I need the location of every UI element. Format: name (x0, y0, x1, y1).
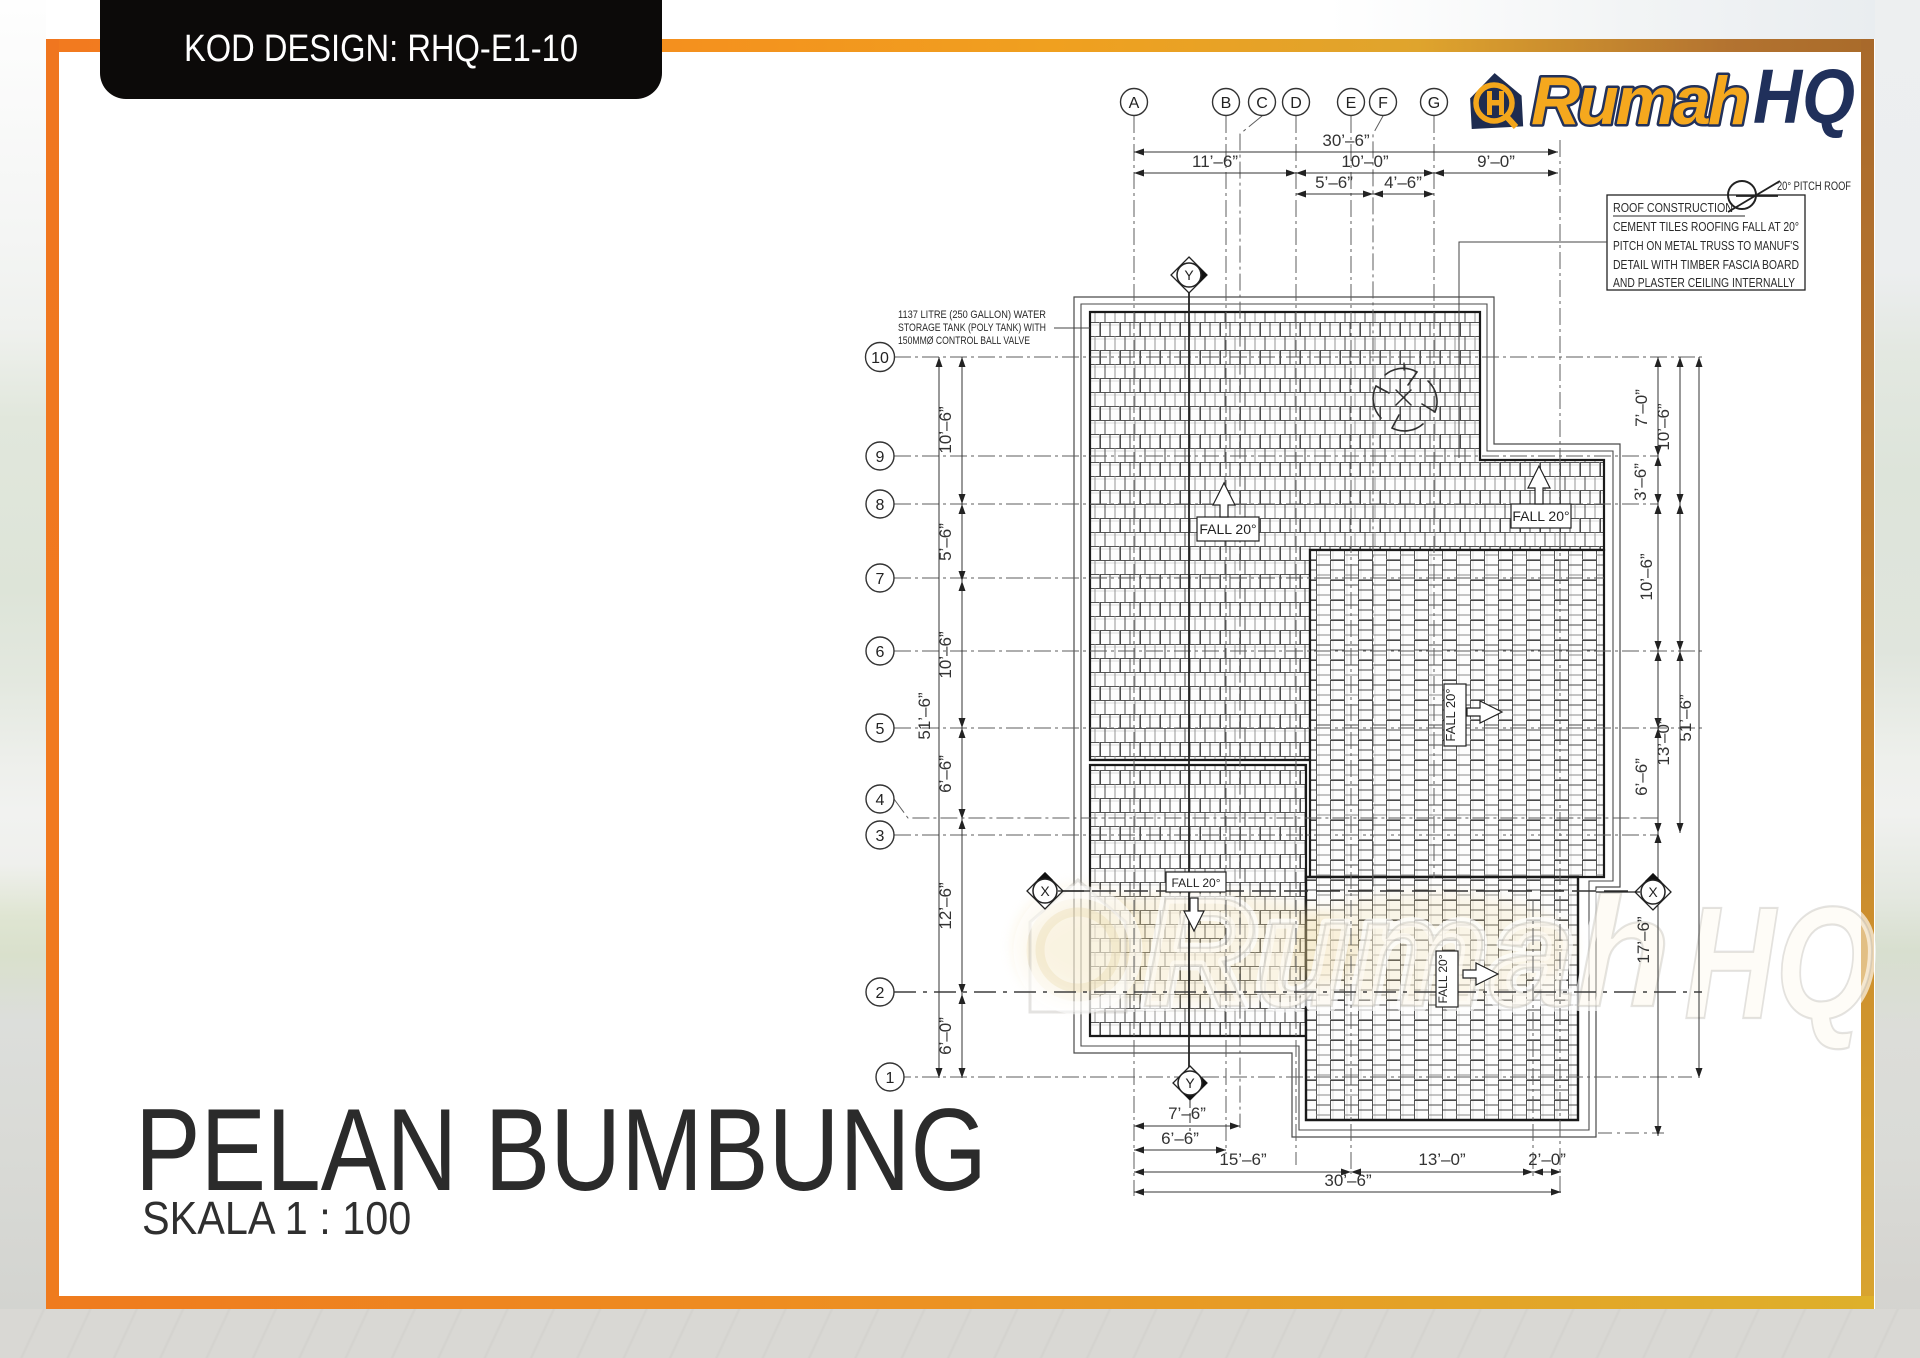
svg-text:FALL 20°: FALL 20° (1199, 521, 1256, 537)
svg-text:20° PITCH ROOF: 20° PITCH ROOF (1777, 181, 1851, 193)
svg-text:10’–6”: 10’–6” (936, 406, 955, 454)
svg-text:ROOF CONSTRUCTION: ROOF CONSTRUCTION (1613, 200, 1733, 215)
svg-text:30’–6”: 30’–6” (1322, 131, 1370, 150)
svg-text:X: X (1648, 884, 1658, 900)
svg-text:7’–6”: 7’–6” (1168, 1104, 1206, 1123)
svg-text:6: 6 (876, 644, 885, 661)
svg-text:G: G (1428, 95, 1440, 112)
svg-text:FALL 20°: FALL 20° (1443, 688, 1458, 741)
svg-text:9: 9 (876, 449, 885, 466)
svg-text:8: 8 (876, 497, 885, 514)
svg-text:C: C (1256, 95, 1268, 112)
svg-text:4: 4 (876, 792, 885, 809)
svg-text:12’–6”: 12’–6” (936, 882, 955, 930)
svg-text:7’–0”: 7’–0” (1632, 389, 1651, 427)
svg-text:6’–0”: 6’–0” (936, 1017, 955, 1055)
svg-text:10’–0”: 10’–0” (1341, 152, 1389, 171)
svg-text:STORAGE TANK (POLY TANK) WITH: STORAGE TANK (POLY TANK) WITH (898, 322, 1046, 334)
svg-text:D: D (1290, 95, 1302, 112)
svg-text:51’–6”: 51’–6” (915, 692, 934, 740)
svg-text:11’–6”: 11’–6” (1192, 152, 1238, 171)
svg-text:HQ: HQ (1684, 873, 1874, 1052)
svg-text:Y: Y (1185, 1075, 1195, 1091)
svg-text:51’–6”: 51’–6” (1676, 694, 1695, 742)
svg-text:15’–6”: 15’–6” (1219, 1150, 1267, 1169)
svg-text:AND PLASTER CEILING INTERNALLY: AND PLASTER CEILING INTERNALLY (1613, 275, 1795, 290)
svg-text:5’–6”: 5’–6” (936, 523, 955, 561)
svg-text:3’–6”: 3’–6” (1631, 463, 1650, 501)
svg-text:PITCH ON METAL TRUSS TO MANUF': PITCH ON METAL TRUSS TO MANUF'S (1613, 238, 1799, 253)
svg-text:4’–6”: 4’–6” (1384, 173, 1422, 192)
svg-text:5: 5 (876, 721, 885, 738)
svg-text:10’–6”: 10’–6” (1654, 403, 1673, 451)
svg-text:FALL 20°: FALL 20° (1512, 508, 1569, 524)
svg-text:DETAIL WITH TIMBER FASCIA BOAR: DETAIL WITH TIMBER FASCIA BOARD (1613, 257, 1799, 272)
svg-text:13’–0”: 13’–0” (1654, 718, 1673, 766)
svg-text:6’–6”: 6’–6” (1632, 758, 1651, 796)
svg-text:A: A (1129, 95, 1140, 112)
svg-text:9’–0”: 9’–0” (1477, 152, 1515, 171)
svg-text:X: X (1040, 883, 1050, 899)
svg-text:6’–6”: 6’–6” (1161, 1129, 1199, 1148)
svg-text:13’–0”: 13’–0” (1418, 1150, 1466, 1169)
svg-text:Y: Y (1184, 267, 1194, 283)
svg-text:HQ: HQ (1753, 54, 1855, 140)
svg-text:F: F (1378, 95, 1388, 112)
svg-text:6’–6”: 6’–6” (936, 755, 955, 793)
svg-text:7: 7 (876, 571, 885, 588)
svg-text:3: 3 (876, 828, 885, 845)
svg-text:2’–0”: 2’–0” (1528, 1150, 1566, 1169)
svg-text:FALL 20°: FALL 20° (1436, 954, 1450, 1003)
svg-text:CEMENT TILES ROOFING FALL AT 2: CEMENT TILES ROOFING FALL AT 20° (1613, 219, 1799, 234)
svg-text:Rumah: Rumah (1531, 63, 1747, 139)
svg-text:150MMØ CONTROL BALL VALVE: 150MMØ CONTROL BALL VALVE (898, 335, 1030, 347)
svg-text:10’–6”: 10’–6” (1637, 553, 1656, 601)
svg-text:1137 LITRE (250 GALLON) WATER: 1137 LITRE (250 GALLON) WATER (898, 309, 1046, 321)
svg-text:10: 10 (871, 350, 889, 367)
svg-text:B: B (1221, 95, 1232, 112)
svg-text:5’–6”: 5’–6” (1315, 173, 1353, 192)
svg-text:2: 2 (876, 985, 885, 1002)
svg-text:E: E (1346, 95, 1357, 112)
svg-text:17’–6”: 17’–6” (1634, 916, 1653, 964)
svg-text:10’–6”: 10’–6” (936, 631, 955, 679)
svg-text:30’–6”: 30’–6” (1324, 1171, 1372, 1190)
svg-text:FALL 20°: FALL 20° (1171, 876, 1220, 890)
